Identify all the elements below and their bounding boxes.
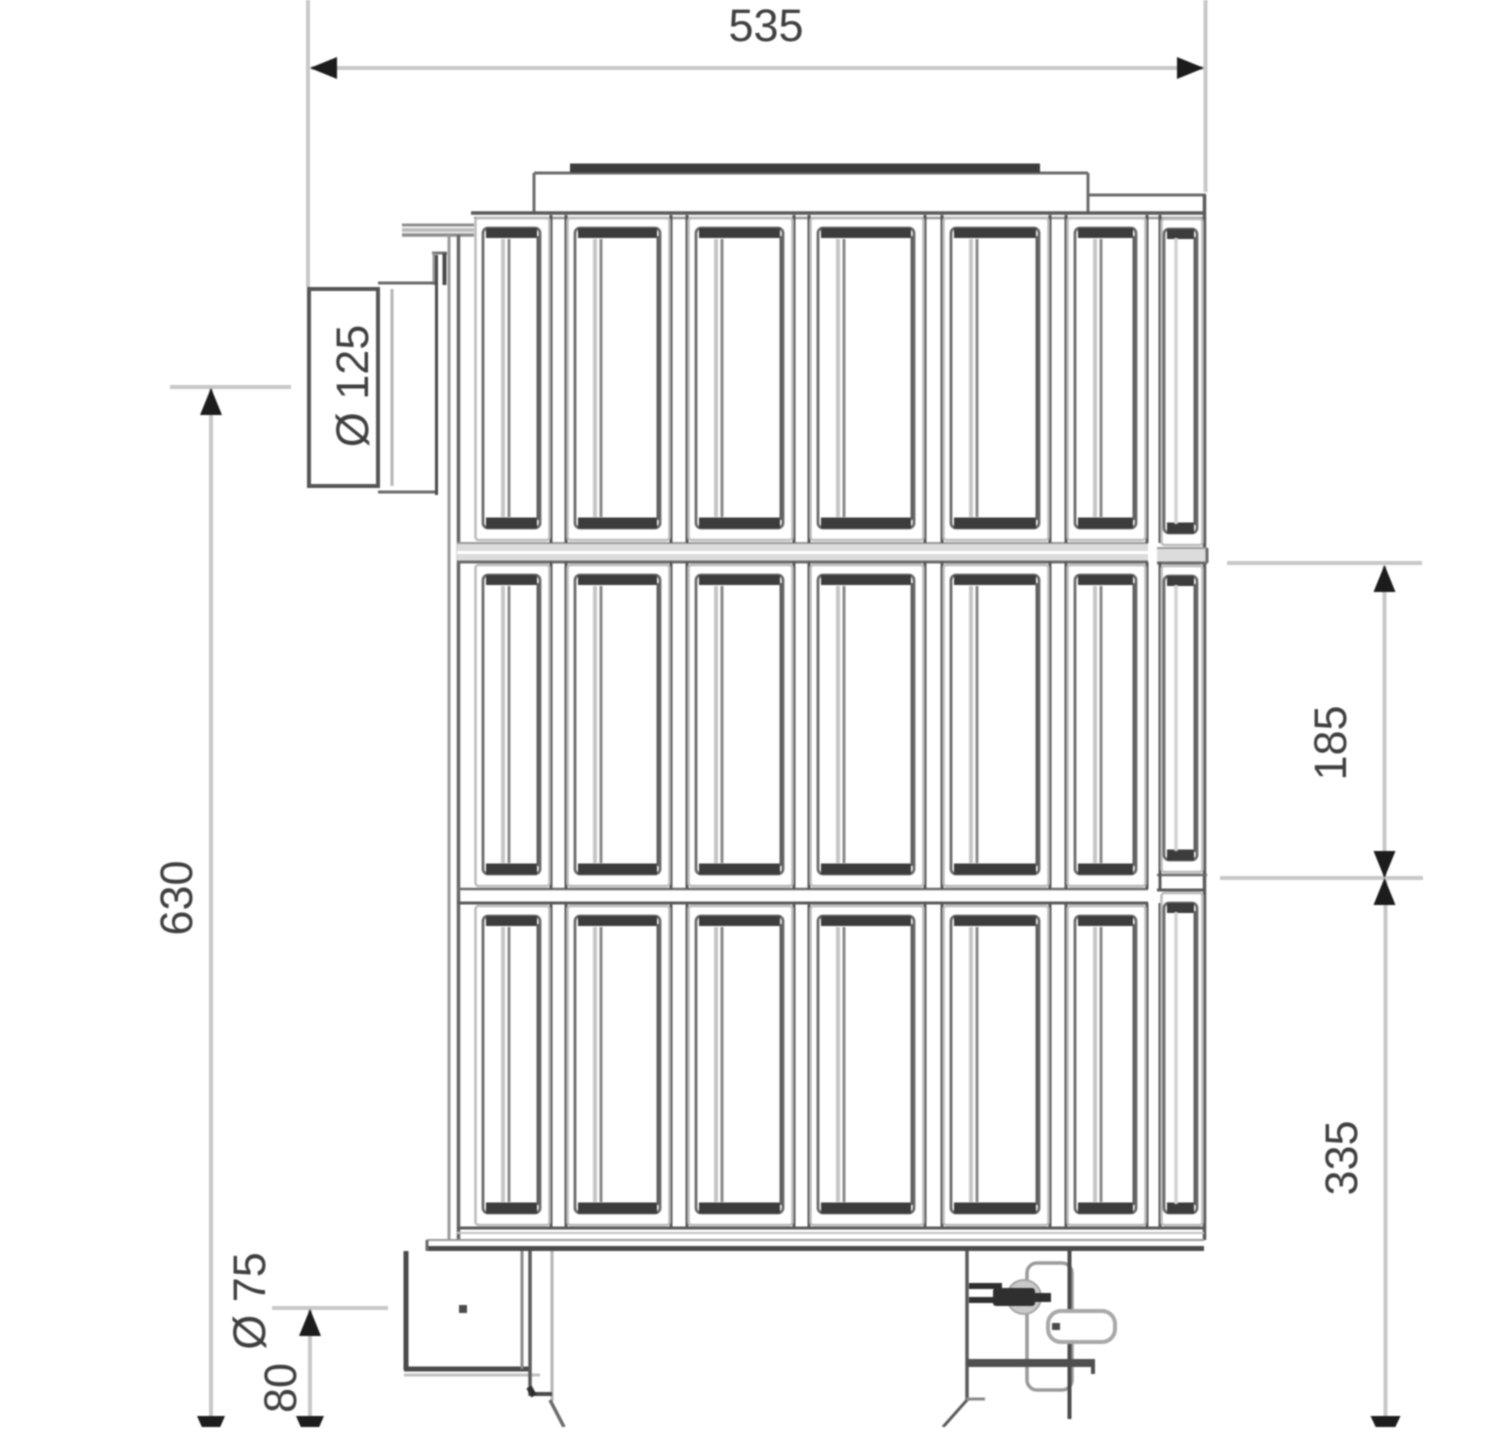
svg-text:185: 185 bbox=[1305, 705, 1356, 780]
svg-text:Ø 125: Ø 125 bbox=[327, 325, 378, 448]
svg-text:Ø 75: Ø 75 bbox=[224, 1252, 275, 1350]
svg-text:535: 535 bbox=[728, 0, 803, 51]
svg-text:80: 80 bbox=[255, 1363, 306, 1413]
svg-text:630: 630 bbox=[151, 860, 202, 935]
svg-text:335: 335 bbox=[1316, 1120, 1367, 1195]
